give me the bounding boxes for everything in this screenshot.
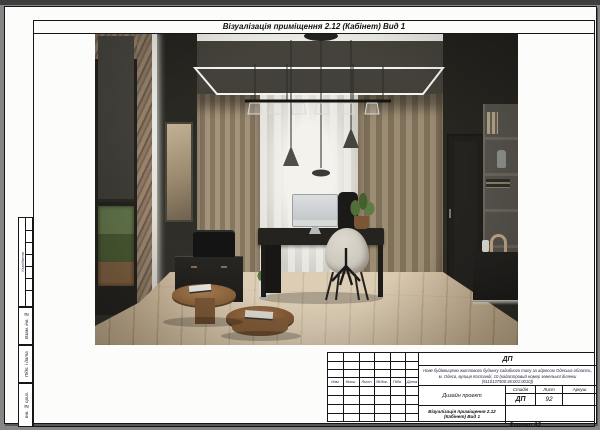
led-ceiling-light (195, 68, 443, 94)
project-type: Дизайн проект (419, 386, 506, 406)
format-label: Формат А3 (460, 422, 590, 430)
rev-header: Кільк. (343, 377, 359, 386)
approvals-rule (25, 266, 34, 267)
revision-table: Изм. Кільк. Лист №док. Підп. Дата (328, 353, 419, 421)
rev-header: Підп. (390, 377, 405, 386)
ceiling-canopy (304, 34, 338, 41)
approvals-rule (25, 254, 34, 255)
empty-cell (506, 406, 596, 423)
grid-line (328, 404, 418, 405)
side-cell-inv-orig: Інв. № ориг. (18, 383, 33, 427)
grid-line (359, 353, 360, 421)
project-code: ДП (419, 353, 596, 366)
sheets-header: Аркуш (563, 386, 596, 394)
side-cell-podp-data: Підп. і дата (18, 345, 33, 383)
grid-line (374, 353, 375, 421)
approvals-rule (25, 230, 34, 231)
drawing-title-cell: Візуалізація приміщення 2.12 (Кабінет) В… (419, 406, 506, 423)
page-title: Візуалізація приміщення 2.12 (Кабінет) В… (33, 20, 595, 34)
grid-line (405, 353, 406, 421)
grid-line (328, 395, 418, 396)
pendant-cone (283, 146, 299, 166)
rev-header: №док. (374, 377, 390, 386)
approvals-rule (25, 242, 34, 243)
grid-line (390, 353, 391, 421)
project-description: Нове будівництво житлового будинку садиб… (419, 366, 596, 386)
description-line: (5110137500:46:001:0010)) (419, 379, 596, 385)
side-cell-vzam-inv: Взам. інв. № (18, 307, 33, 345)
viewer-top-edge (0, 0, 600, 5)
approvals-label: Узгоджено (19, 218, 26, 306)
sheet-header: Лист (536, 386, 563, 394)
stage-header: Стадія (506, 386, 536, 394)
render-line-details (95, 34, 518, 345)
floor-shadows (163, 292, 383, 341)
approvals-rule (25, 290, 34, 291)
glass-shades (248, 103, 379, 114)
rev-header: Изм. (328, 377, 343, 386)
grid-line (328, 361, 418, 362)
pendant-disc (312, 170, 330, 177)
approvals-rule (25, 278, 34, 279)
side-label: Підп. і дата (19, 346, 32, 382)
grid-line (328, 413, 418, 414)
approvals-table: Узгоджено (18, 217, 33, 307)
rev-header: Лист (359, 377, 374, 386)
grid-line (343, 353, 344, 421)
title-block: Изм. Кільк. Лист №док. Підп. Дата ДП Нов… (327, 352, 595, 422)
pendant-cone (343, 128, 359, 148)
sheets-value (563, 394, 596, 406)
stage-value: ДП (506, 394, 536, 406)
office-render-image (95, 34, 518, 345)
drawing-sheet: Візуалізація приміщення 2.12 (Кабінет) В… (4, 6, 597, 424)
rev-header: Дата (405, 377, 419, 386)
side-label: Взам. інв. № (19, 308, 32, 344)
side-label: Інв. № ориг. (19, 384, 32, 426)
grid-line (328, 386, 418, 387)
grid-line (328, 369, 418, 370)
description-line: Нове будівництво житлового будинку садиб… (419, 368, 596, 374)
sheet-number: 92 (536, 394, 563, 406)
